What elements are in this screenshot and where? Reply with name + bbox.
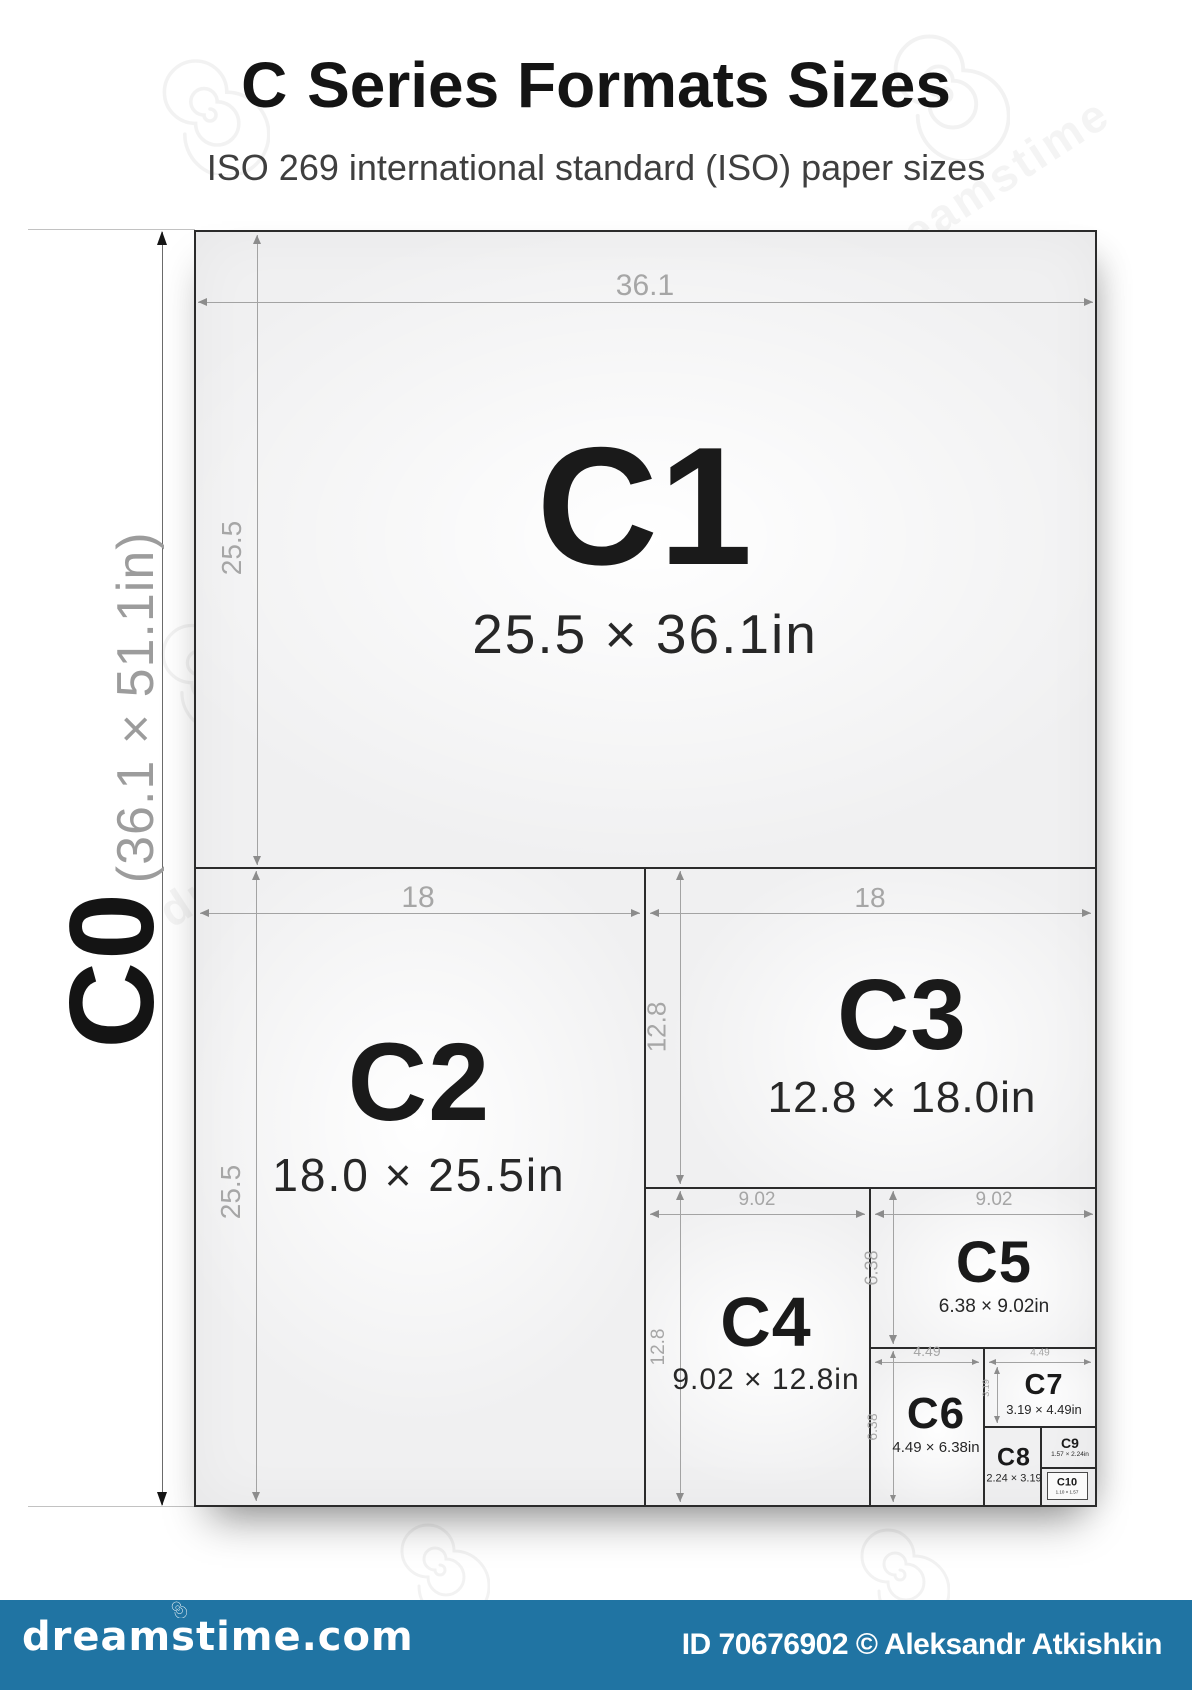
divider-c4-right (869, 1187, 871, 1505)
dim-line-c5-height (893, 1191, 894, 1344)
dim-line-c5-width (875, 1214, 1093, 1215)
dim-label-c7-width: 4.49 (1030, 1348, 1049, 1359)
dim-line-c2-height (256, 871, 257, 1501)
format-size: 6.38 × 9.02in (939, 1296, 1049, 1318)
dreamstime-logo: dreamstime.com (22, 1614, 414, 1660)
dim-label-c2-height: 25.5 (215, 1165, 247, 1220)
dim-line-c4-width (650, 1214, 865, 1215)
logo-spiral-icon (170, 1601, 187, 1618)
format-name: C8 (986, 1446, 1041, 1471)
format-size: 3.19 × 4.49in (1006, 1402, 1082, 1417)
dim-label-c3-width: 18 (854, 882, 885, 914)
dim-label-c6-width: 4.49 (913, 1343, 940, 1359)
format-label-c6: C6 4.49 × 6.38in (892, 1392, 979, 1456)
dim-label-c4-width: 9.02 (739, 1189, 776, 1211)
divider-c5-bottom (869, 1347, 1095, 1349)
format-size: 1.10 × 1.57 (1056, 1490, 1079, 1495)
dim-label-c6-height: 6.38 (864, 1413, 880, 1440)
brand-text: dreamstime.com (22, 1614, 414, 1660)
format-label-c3: C3 12.8 × 18.0in (768, 965, 1037, 1123)
footer-bar: dreamstime.com ID 70676902 © Aleksandr A… (0, 1600, 1192, 1690)
divider-c2-right (644, 867, 646, 1505)
image-credit: ID 70676902 © Aleksandr Atkishkin (682, 1628, 1162, 1662)
format-name: C4 (672, 1287, 859, 1357)
dim-label-c5-height: 6.38 (862, 1250, 883, 1285)
dim-line-c7-height (997, 1367, 998, 1423)
format-name: C5 (939, 1234, 1049, 1292)
dim-label-c3-height: 12.8 (642, 1002, 673, 1053)
format-name: C7 (1006, 1371, 1082, 1400)
format-name: C6 (892, 1392, 979, 1436)
format-size: 25.5 × 36.1in (472, 602, 818, 666)
dim-label-c5-width: 9.02 (976, 1189, 1013, 1211)
format-size: 1.57 × 2.24in (1051, 1451, 1089, 1458)
dim-line-c6-width (875, 1362, 979, 1363)
divider-c9-bottom (1040, 1467, 1095, 1469)
dim-label-c1-height: 25.5 (216, 521, 248, 576)
format-size: 2.24 × 3.19 (986, 1473, 1041, 1485)
format-label-c7: C7 3.19 × 4.49in (1006, 1371, 1082, 1417)
format-label-c2: C2 18.0 × 25.5in (272, 1028, 565, 1202)
extension-line-top (28, 229, 195, 230)
dim-label-c2-width: 18 (401, 881, 434, 915)
format-label-c4: C4 9.02 × 12.8in (672, 1287, 859, 1397)
c0-dimensions: (36.1 × 51.1in) (107, 531, 165, 883)
dim-label-c7-height: 3.19 (981, 1379, 991, 1397)
c0-name: C0 (45, 891, 179, 1048)
format-name: C2 (272, 1028, 565, 1138)
dim-label-c4-height: 12.8 (648, 1329, 670, 1366)
format-label-c5: C5 6.38 × 9.02in (939, 1234, 1049, 1318)
dim-line-c3-height (680, 871, 681, 1184)
format-name: C9 (1051, 1436, 1089, 1450)
format-name: C10 (1056, 1478, 1079, 1489)
title-text: Series Formats Sizes (289, 49, 951, 121)
format-name: C1 (472, 422, 818, 590)
dim-label-c1-width: 36.1 (616, 269, 674, 303)
dim-line-c1-height (257, 235, 258, 865)
divider-c7-bottom (983, 1426, 1095, 1428)
c0-label: C0(36.1 × 51.1in) (37, 485, 187, 1095)
format-name: C3 (768, 965, 1037, 1065)
format-label-c1: C1 25.5 × 36.1in (472, 422, 818, 666)
format-size: 9.02 × 12.8in (672, 1363, 859, 1397)
format-label-c8: C8 2.24 × 3.19 (986, 1446, 1041, 1485)
format-size: 18.0 × 25.5in (272, 1148, 565, 1202)
title-series-letter: C (241, 49, 289, 121)
paper-sheet: 36.1 25.5 18 25.5 18 12.8 9.02 12.8 9.02… (194, 230, 1097, 1507)
page-subtitle: ISO 269 international standard (ISO) pap… (0, 147, 1192, 189)
page-title: C Series Formats Sizes (0, 48, 1192, 122)
format-size: 12.8 × 18.0in (768, 1073, 1037, 1123)
format-label-c9: C9 1.57 × 2.24in (1051, 1436, 1089, 1458)
format-size: 4.49 × 6.38in (892, 1439, 979, 1456)
dim-line-c7-width (989, 1362, 1091, 1363)
format-label-c10: C10 1.10 × 1.57 (1056, 1478, 1079, 1495)
extension-line-bottom (28, 1506, 195, 1507)
